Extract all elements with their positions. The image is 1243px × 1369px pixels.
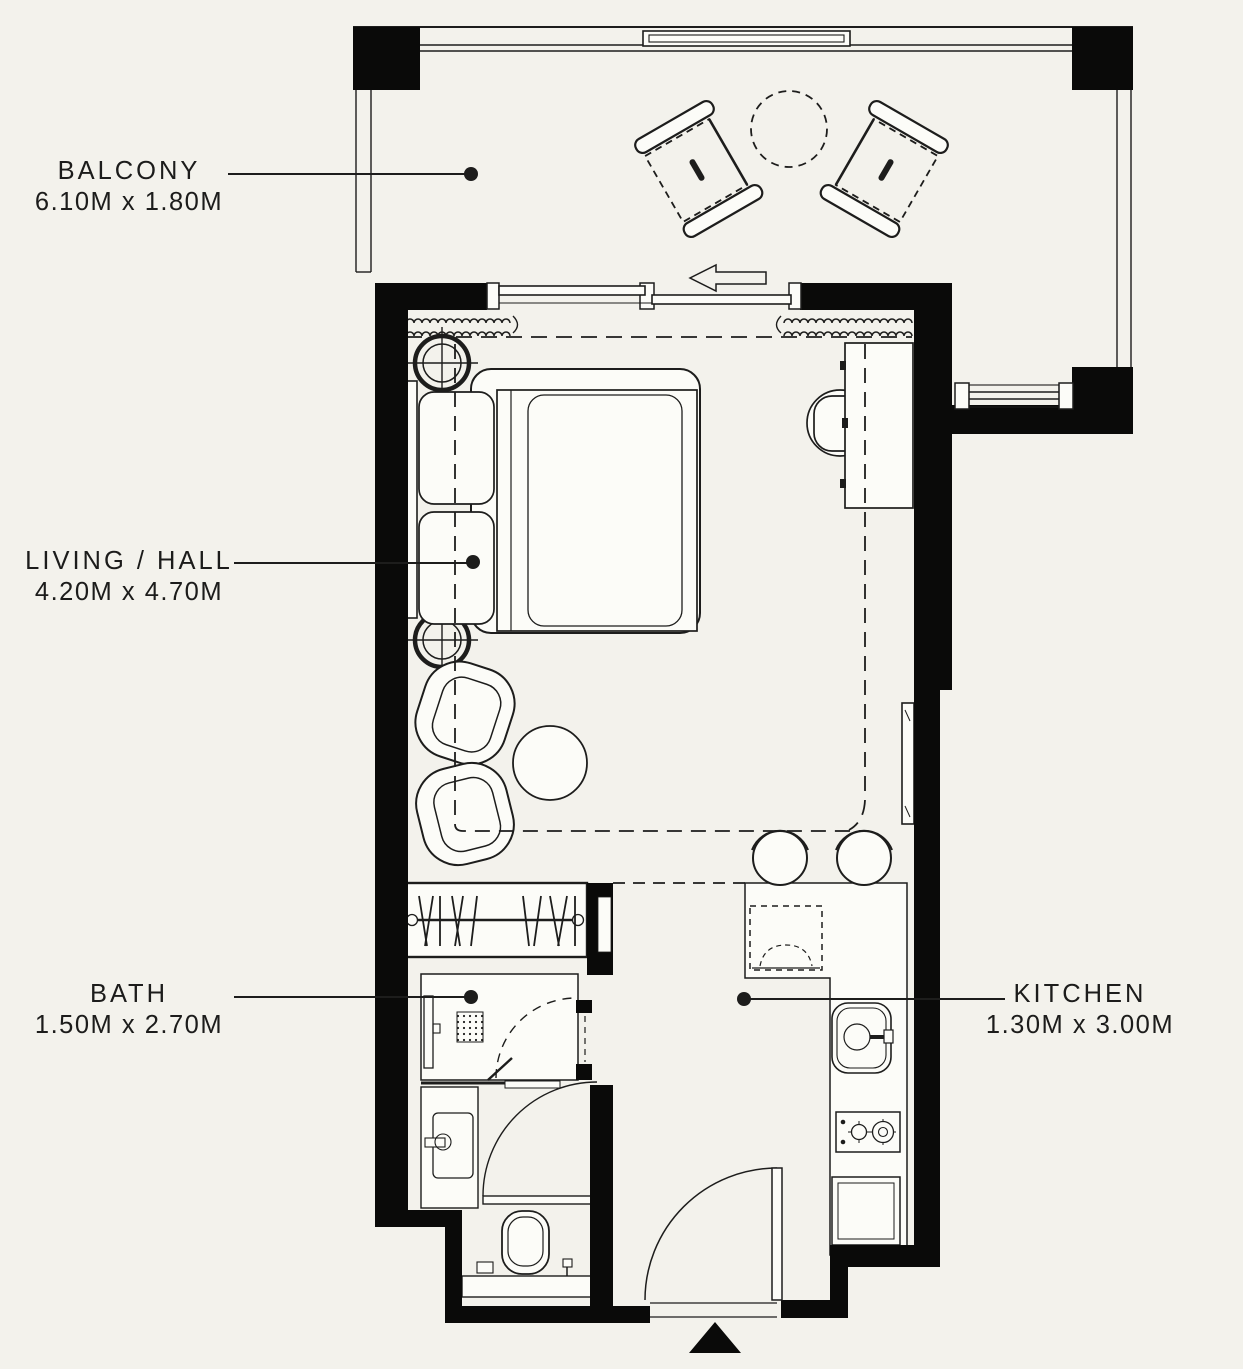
bath-dimensions: 1.50M x 2.70M: [16, 1010, 242, 1041]
kitchen-name: KITCHEN: [978, 979, 1182, 1010]
living-label: LIVING / HALL 4.20M x 4.70M: [16, 546, 242, 608]
door-direction-arrow: [690, 265, 766, 291]
living-furniture: [404, 316, 914, 885]
balcony-chair-left: [633, 99, 765, 240]
bath-name: BATH: [16, 979, 242, 1010]
kitchen-sink: [832, 1003, 893, 1073]
desk: [840, 343, 913, 508]
balcony-chair-right: [818, 99, 950, 240]
pillow: [419, 512, 494, 624]
armchair-top: [406, 652, 524, 774]
kitchen-marker-dot: [737, 992, 751, 1006]
floor-drain: [457, 1012, 483, 1042]
balcony-marker-dot: [464, 167, 478, 181]
balcony-label: BALCONY 6.10M x 1.80M: [20, 156, 238, 218]
shower: [421, 974, 585, 1088]
living-dimensions: 4.20M x 4.70M: [16, 577, 242, 608]
entry-arrow: [689, 1322, 741, 1353]
gas-hob: [836, 1112, 900, 1152]
toilet: [462, 1211, 596, 1297]
bar-stool-right: [836, 831, 892, 885]
living-marker-dot: [466, 555, 480, 569]
appliance: [832, 1177, 900, 1245]
bath-label: BATH 1.50M x 2.70M: [16, 979, 242, 1041]
balcony-round-table: [751, 91, 827, 167]
side-table: [513, 726, 587, 800]
balcony-dimensions: 6.10M x 1.80M: [20, 187, 238, 218]
balcony-planter: [643, 31, 850, 46]
kitchen-counter: [745, 883, 907, 1255]
entry-door: [645, 1168, 782, 1317]
column-top-right: [1072, 27, 1133, 90]
wardrobe: [403, 883, 587, 957]
bath-door: [483, 1082, 597, 1204]
sliding-door: [487, 283, 801, 309]
kitchen-label: KITCHEN 1.30M x 3.00M: [978, 979, 1182, 1041]
wall-mirror: [902, 703, 914, 824]
curtain-right: [777, 316, 913, 336]
blanket: [497, 390, 697, 631]
kitchen-dimensions: 1.30M x 3.00M: [978, 1010, 1182, 1041]
vanity-sink: [421, 1087, 478, 1208]
bar-stool-left: [752, 831, 808, 885]
curtain-left: [406, 316, 518, 336]
floor-plan-canvas: BALCONY 6.10M x 1.80M LIVING / HALL 4.20…: [0, 0, 1243, 1369]
balcony-name: BALCONY: [20, 156, 238, 187]
pillow: [419, 392, 494, 504]
armchair-bottom: [409, 755, 522, 872]
column-top-left: [353, 27, 420, 90]
living-name: LIVING / HALL: [16, 546, 242, 577]
double-bed: [404, 369, 700, 633]
bath-marker-dot: [464, 990, 478, 1004]
